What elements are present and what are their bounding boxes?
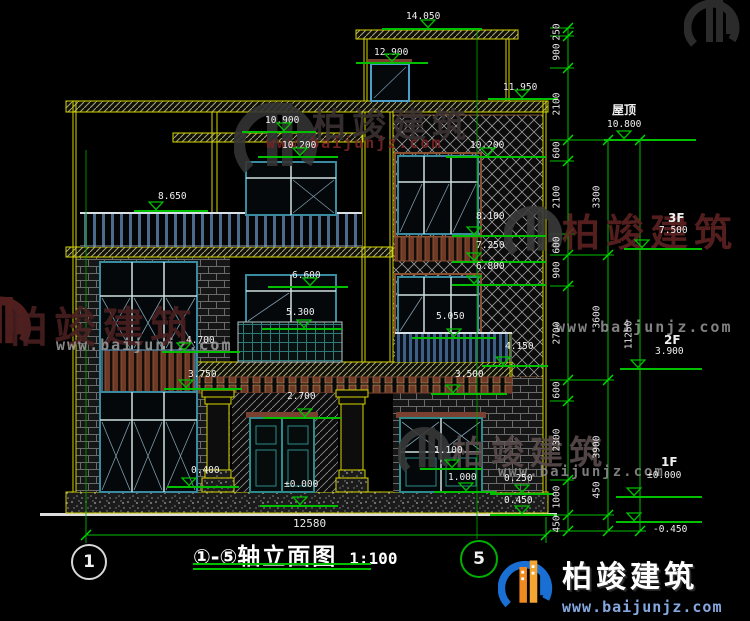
- title-name: 轴立面图: [237, 544, 337, 570]
- brand-url: www.baijunjz.com: [562, 598, 723, 616]
- title-underline-2: [193, 568, 371, 570]
- title-underline-1: [193, 563, 371, 565]
- brand-logo-icon: [498, 552, 554, 614]
- title-scale: 1:100: [349, 549, 397, 568]
- title-axis-range: ①-⑤: [193, 545, 237, 569]
- drawing-title: ①-⑤轴立面图1:100: [193, 537, 397, 571]
- brand-name: 柏竣建筑: [562, 552, 723, 596]
- dimension-linework: [0, 0, 750, 621]
- brand-logo: 柏竣建筑 www.baijunjz.com: [498, 552, 723, 616]
- cad-elevation-screenshot: 柏竣建筑www.baijunjz.com 柏竣建筑www.baijunjz.co…: [0, 0, 750, 621]
